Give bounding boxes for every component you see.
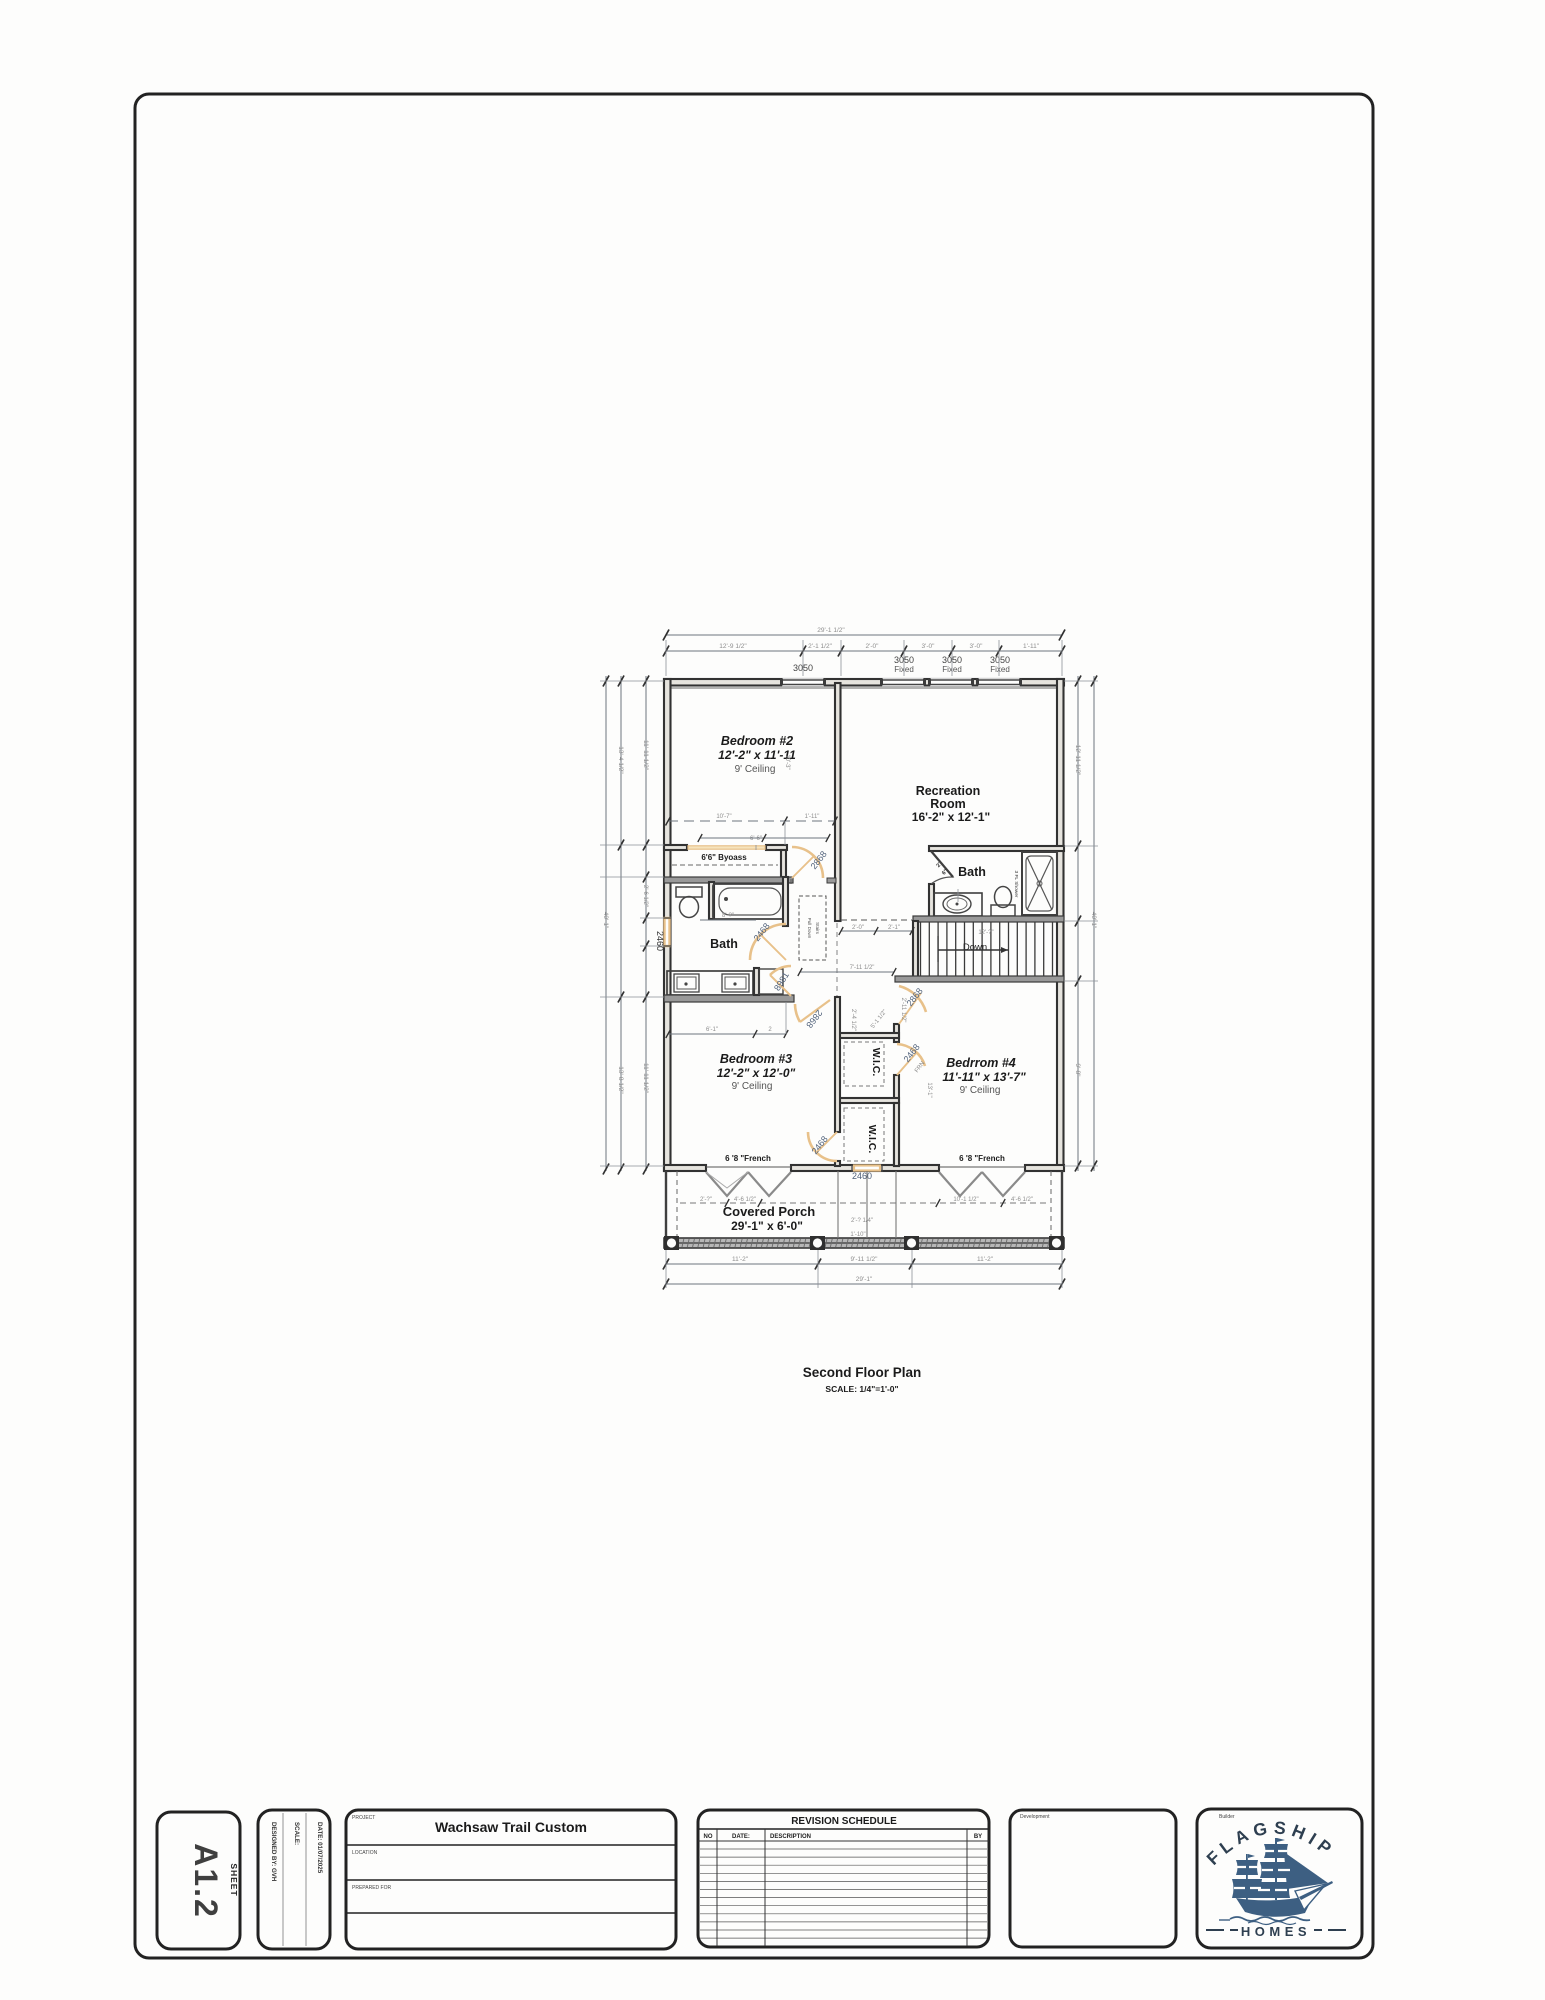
svg-text:W.I.C.: W.I.C. bbox=[870, 1048, 882, 1077]
svg-text:9' Ceiling: 9' Ceiling bbox=[732, 1081, 773, 1092]
svg-text:BY: BY bbox=[974, 1834, 982, 1840]
svg-text:6 '8 "French: 6 '8 "French bbox=[725, 1154, 771, 1163]
svg-text:2'-1": 2'-1" bbox=[888, 925, 900, 931]
svg-text:11'-2": 11'-2" bbox=[732, 1256, 749, 1263]
svg-text:Development: Development bbox=[1020, 1814, 1050, 1820]
svg-text:8'-?": 8'-?" bbox=[722, 913, 734, 919]
svg-text:9' Ceiling: 9' Ceiling bbox=[960, 1085, 1001, 1096]
svg-text:12'-?": 12'-?" bbox=[978, 930, 993, 936]
svg-text:Room: Room bbox=[930, 797, 965, 811]
svg-text:2'-0": 2'-0" bbox=[866, 643, 880, 650]
svg-text:3 FL Shower: 3 FL Shower bbox=[1013, 870, 1019, 897]
svg-text:PROJECT: PROJECT bbox=[352, 1815, 375, 1821]
svg-text:Down: Down bbox=[963, 942, 987, 953]
svg-text:13'-1": 13'-1" bbox=[926, 1082, 932, 1097]
svg-text:3'-0": 3'-0" bbox=[922, 643, 936, 650]
svg-text:Pull Down: Pull Down bbox=[807, 918, 812, 939]
svg-text:Bath: Bath bbox=[958, 865, 986, 879]
svg-text:4'-6 1/2": 4'-6 1/2" bbox=[1011, 1197, 1033, 1203]
svg-text:DESCRIPTION: DESCRIPTION bbox=[770, 1834, 811, 1840]
svg-text:LOCATION: LOCATION bbox=[352, 1850, 378, 1856]
svg-text:10'-1 1/2": 10'-1 1/2" bbox=[953, 1197, 978, 1203]
svg-text:DESIGNED BY: GVH: DESIGNED BY: GVH bbox=[270, 1822, 277, 1882]
svg-text:2468: 2468 bbox=[752, 921, 772, 943]
svg-text:4'-6 1/2": 4'-6 1/2" bbox=[734, 1197, 756, 1203]
svg-text:8981: 8981 bbox=[772, 970, 791, 992]
svg-text:6'6" Byoass: 6'6" Byoass bbox=[701, 853, 747, 862]
svg-text:13'-4 1/2": 13'-4 1/2" bbox=[617, 746, 624, 774]
svg-text:2'-?": 2'-?" bbox=[700, 1197, 712, 1203]
svg-text:W.I.C.: W.I.C. bbox=[866, 1125, 878, 1154]
svg-text:Recreation: Recreation bbox=[916, 784, 981, 798]
svg-text:13'-8 1/2": 13'-8 1/2" bbox=[617, 1066, 624, 1094]
svg-text:2468: 2468 bbox=[810, 1134, 830, 1156]
svg-text:6 '8 "French: 6 '8 "French bbox=[959, 1154, 1005, 1163]
svg-text:40'-1": 40'-1" bbox=[1090, 912, 1097, 929]
svg-text:9'-11 1/2": 9'-11 1/2" bbox=[851, 1256, 879, 1263]
svg-text:Bedrrom #4: Bedrrom #4 bbox=[946, 1056, 1016, 1070]
svg-text:SCALE:: SCALE: bbox=[293, 1822, 300, 1845]
svg-text:29'-1 1/2": 29'-1 1/2" bbox=[817, 627, 845, 634]
svg-text:Bedroom #2: Bedroom #2 bbox=[721, 734, 793, 748]
svg-text:10'-7": 10'-7" bbox=[716, 814, 731, 820]
svg-text:29'-1": 29'-1" bbox=[856, 1276, 873, 1283]
svg-text:6": 6" bbox=[941, 868, 949, 876]
svg-text:40'-1": 40'-1" bbox=[602, 912, 609, 929]
svg-text:1'-11": 1'-11" bbox=[805, 814, 820, 820]
svg-text:DATE: 01/07/2025: DATE: 01/07/2025 bbox=[316, 1822, 323, 1874]
svg-text:11'-11 1/2": 11'-11 1/2" bbox=[642, 1063, 649, 1094]
svg-text:12'-2" x 12'-0": 12'-2" x 12'-0" bbox=[717, 1066, 796, 1080]
svg-text:SHEET: SHEET bbox=[229, 1863, 239, 1896]
svg-text:Builder: Builder bbox=[1219, 1814, 1235, 1820]
svg-text:10'-3": 10'-3" bbox=[784, 754, 790, 769]
svg-text:2460: 2460 bbox=[655, 931, 665, 951]
svg-text:12'-9 1/2": 12'-9 1/2" bbox=[719, 643, 747, 650]
svg-text:SCALE: 1/4"=1'-0": SCALE: 1/4"=1'-0" bbox=[825, 1384, 898, 1394]
svg-text:29'-1" x 6'-0": 29'-1" x 6'-0" bbox=[731, 1219, 803, 1233]
svg-text:11'-2": 11'-2" bbox=[977, 1256, 994, 1263]
svg-text:Wachsaw Trail Custom: Wachsaw Trail Custom bbox=[435, 1819, 587, 1835]
svg-text:Bedroom #3: Bedroom #3 bbox=[720, 1052, 792, 1066]
svg-text:Fixed: Fixed bbox=[990, 665, 1010, 674]
svg-text:HOMES: HOMES bbox=[1241, 1924, 1311, 1939]
svg-text:12'-11 1/2": 12'-11 1/2" bbox=[1074, 745, 1081, 776]
svg-text:2'-1 1/2": 2'-1 1/2" bbox=[808, 643, 832, 650]
svg-text:2'-4 1/2": 2'-4 1/2" bbox=[850, 1009, 856, 1031]
svg-text:6'-6": 6'-6" bbox=[750, 836, 762, 842]
svg-text:PREPARED FOR: PREPARED FOR bbox=[352, 1885, 391, 1891]
svg-text:Stairs: Stairs bbox=[815, 922, 820, 934]
svg-text:FLAGSHIP: FLAGSHIP bbox=[1203, 1817, 1340, 1869]
svg-text:Covered Porch: Covered Porch bbox=[723, 1204, 816, 1219]
svg-text:NO: NO bbox=[704, 1834, 713, 1840]
svg-text:REVISION SCHEDULE: REVISION SCHEDULE bbox=[791, 1816, 897, 1827]
svg-text:Second Floor Plan: Second Floor Plan bbox=[803, 1365, 922, 1380]
svg-text:11'-11" x 13'-7": 11'-11" x 13'-7" bbox=[942, 1070, 1026, 1084]
svg-text:16'-2" x 12'-1": 16'-2" x 12'-1" bbox=[912, 810, 990, 824]
svg-text:Bath: Bath bbox=[710, 937, 738, 951]
svg-text:2'-? 1/4": 2'-? 1/4" bbox=[851, 1218, 873, 1224]
svg-text:9' Ceiling: 9' Ceiling bbox=[735, 764, 776, 775]
svg-text:2460: 2460 bbox=[852, 1171, 872, 1181]
svg-text:1'-10": 1'-10" bbox=[850, 1232, 865, 1238]
svg-text:9'-8": 9'-8" bbox=[1074, 1064, 1081, 1078]
svg-text:A1.2: A1.2 bbox=[188, 1843, 224, 1919]
svg-text:1'-11": 1'-11" bbox=[1023, 643, 1040, 650]
svg-text:3050: 3050 bbox=[990, 655, 1010, 665]
svg-text:5'-1 1/2": 5'-1 1/2" bbox=[870, 1009, 888, 1030]
svg-text:2'-6 1/2": 2'-6 1/2" bbox=[642, 885, 648, 907]
svg-text:2868: 2868 bbox=[804, 1008, 824, 1030]
svg-text:11'-11 1/2": 11'-11 1/2" bbox=[642, 740, 649, 771]
svg-text:3'-0": 3'-0" bbox=[970, 643, 984, 650]
svg-text:2'-11 1/2": 2'-11 1/2" bbox=[900, 998, 906, 1023]
svg-text:7'-11 1/2": 7'-11 1/2" bbox=[850, 965, 875, 971]
svg-text:2'-0": 2'-0" bbox=[852, 925, 864, 931]
svg-text:DATE:: DATE: bbox=[732, 1834, 750, 1840]
svg-text:6'-1": 6'-1" bbox=[706, 1027, 718, 1033]
svg-text:2: 2 bbox=[768, 1027, 772, 1033]
